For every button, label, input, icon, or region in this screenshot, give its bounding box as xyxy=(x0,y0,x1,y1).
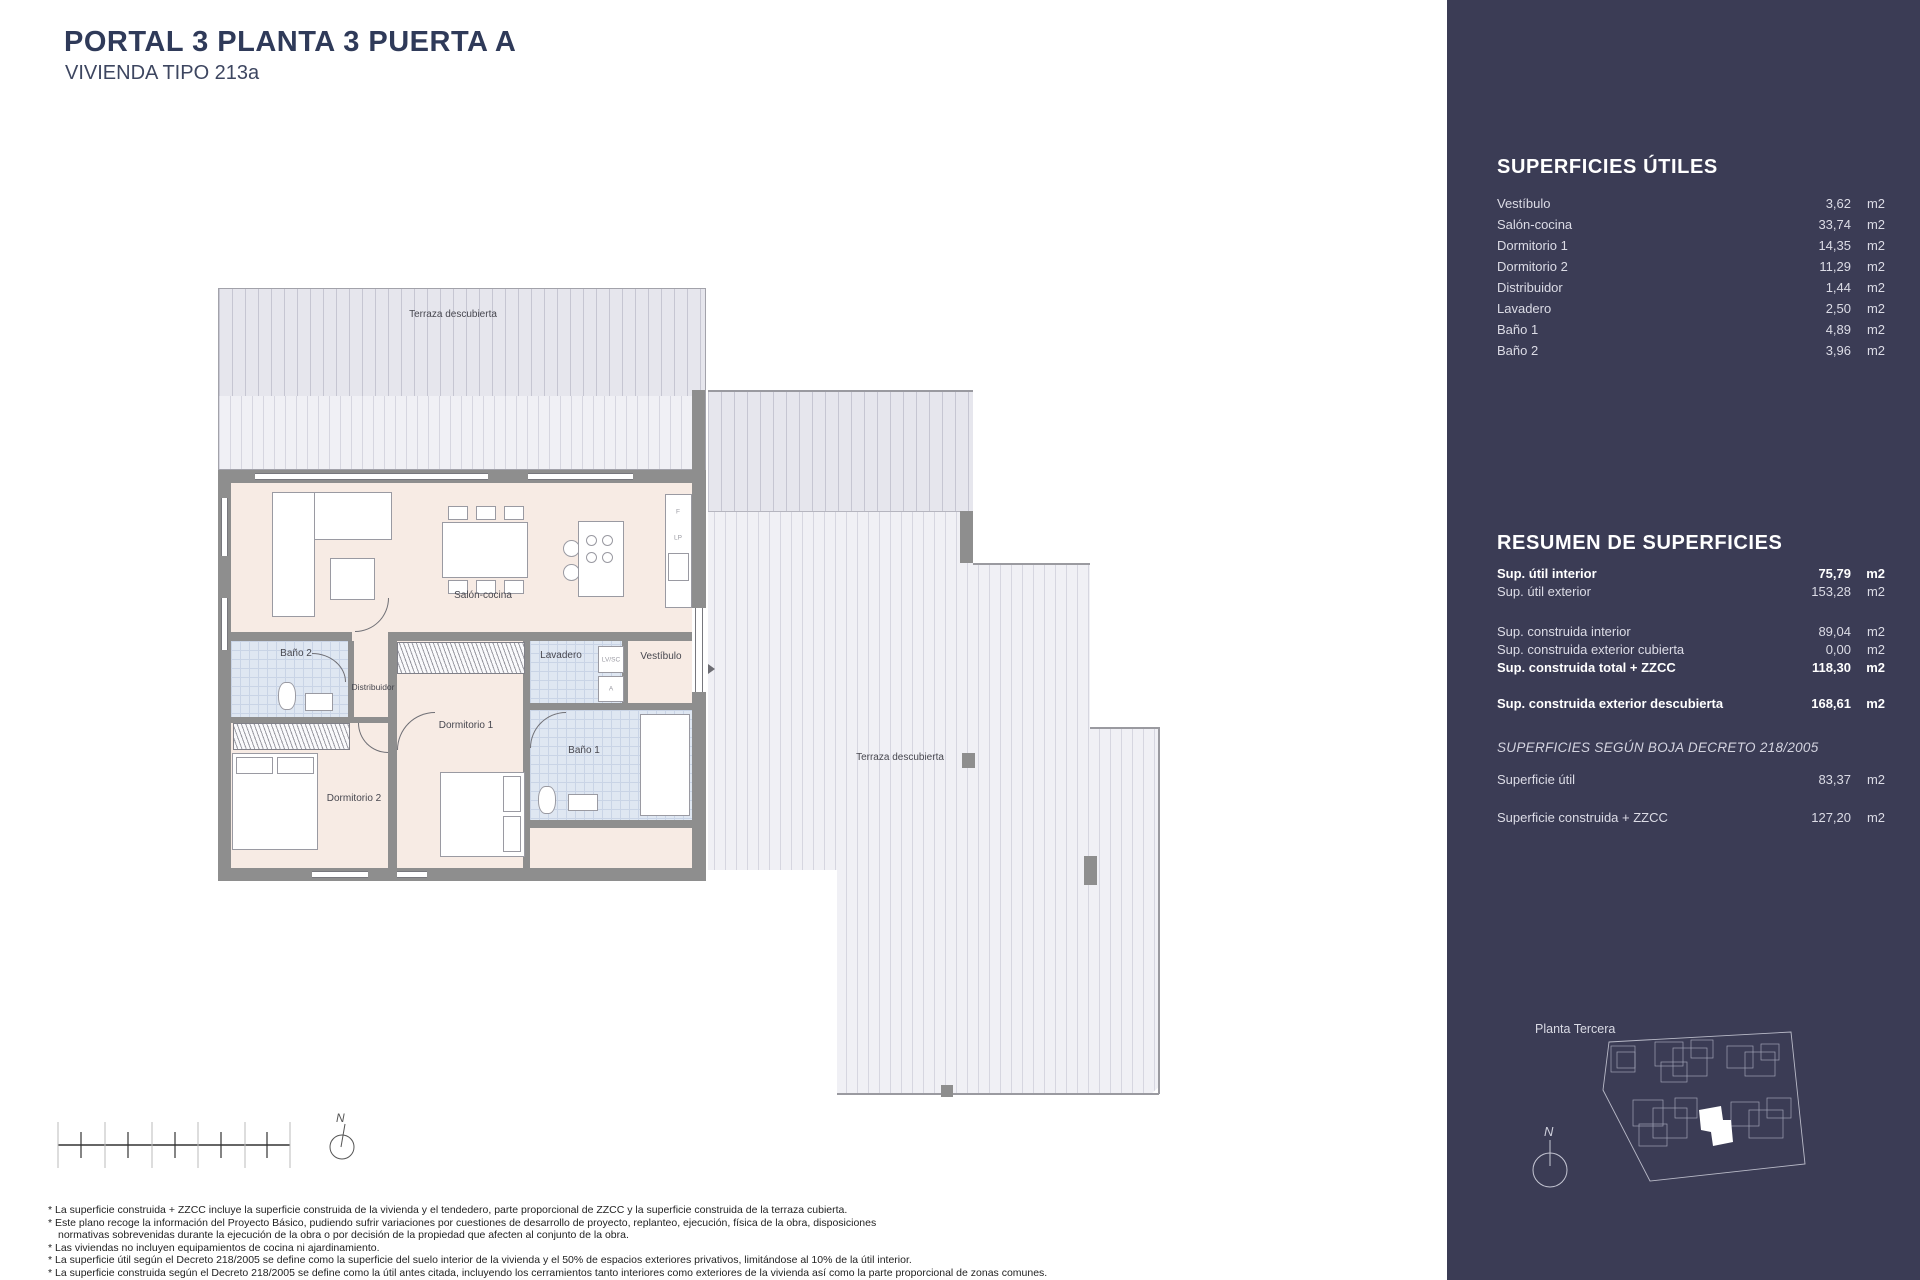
row-value: 11,29 xyxy=(1791,259,1851,277)
sidebar: SUPERFICIES ÚTILES Vestíbulo3,62m2 Salón… xyxy=(1447,0,1920,1280)
chair xyxy=(504,506,524,520)
row-value: 3,96 xyxy=(1791,343,1851,361)
wall-segment xyxy=(692,390,705,470)
kitchen-island xyxy=(578,521,624,597)
wall-segment xyxy=(962,753,975,768)
row-label: Superficie útil xyxy=(1497,772,1791,790)
row-unit: m2 xyxy=(1851,301,1885,319)
row-label: Dormitorio 1 xyxy=(1497,238,1791,256)
terrace-right-label: Terraza descubierta xyxy=(856,752,944,763)
row-value: 118,30 xyxy=(1791,660,1851,678)
row-label: Lavadero xyxy=(1497,301,1791,319)
row-label: Superficie construida + ZZCC xyxy=(1497,810,1791,828)
terrace-right-step-edge xyxy=(1090,727,1160,729)
row-value: 0,00 xyxy=(1791,642,1851,660)
row-unit: m2 xyxy=(1851,343,1885,361)
site-plan xyxy=(1595,1018,1825,1193)
row-label: Distribuidor xyxy=(1497,280,1791,298)
coffee-table xyxy=(330,558,375,600)
room-label-lavadero: Lavadero xyxy=(540,650,582,661)
row-value: 3,62 xyxy=(1791,196,1851,214)
terrace-right-right-edge xyxy=(1158,728,1160,1094)
room-label-bano1: Baño 1 xyxy=(568,745,600,756)
wall-interior xyxy=(388,641,397,868)
row-value: 127,20 xyxy=(1791,810,1851,828)
footnote-line: normativas sobrevenidas durante la ejecu… xyxy=(48,1229,1378,1242)
footnotes: * La superficie construida + ZZCC incluy… xyxy=(48,1204,1378,1279)
row-value: 1,44 xyxy=(1791,280,1851,298)
terrace-top-label: Terraza descubierta xyxy=(409,309,497,320)
row-label: Baño 2 xyxy=(1497,343,1791,361)
sofa xyxy=(272,492,315,617)
terrace-right-top-step-edge xyxy=(973,563,1090,565)
row-value: 89,04 xyxy=(1791,624,1851,642)
floor-plan: Terraza descubierta Terraza descubierta xyxy=(0,0,1447,1280)
superficies-utiles-heading: SUPERFICIES ÚTILES xyxy=(1497,156,1718,179)
kitchen-sink xyxy=(668,553,689,581)
row-unit: m2 xyxy=(1851,696,1885,714)
appliance-label: A xyxy=(609,686,613,693)
cooktop-burner xyxy=(586,552,597,563)
table-row: Superficie útil83,37m2 xyxy=(1497,772,1885,790)
floorplan-sheet: { "colors":{ "sidebar_bg":"#3b3c55", "ti… xyxy=(0,0,1920,1280)
window xyxy=(312,871,368,878)
table-row: Superficie construida + ZZCC127,20m2 xyxy=(1497,810,1885,828)
scale-bar xyxy=(48,1118,300,1170)
wall-interior xyxy=(530,703,692,710)
row-label: Baño 1 xyxy=(1497,322,1791,340)
table-row: Dormitorio 211,29m2 xyxy=(1497,259,1885,277)
chair xyxy=(476,506,496,520)
room-label-vestibulo: Vestíbulo xyxy=(640,651,681,662)
footnote-line: * Este plano recoge la información del P… xyxy=(48,1217,1378,1230)
row-unit: m2 xyxy=(1851,238,1885,256)
boja-heading: SUPERFICIES SEGÚN BOJA DECRETO 218/2005 xyxy=(1497,740,1819,755)
site-plan-highlighted-unit xyxy=(1699,1106,1733,1146)
table-row: Sup. construida total + ZZCC118,30m2 xyxy=(1497,660,1885,678)
terrace-top: Terraza descubierta xyxy=(218,288,706,470)
row-label: Sup. útil exterior xyxy=(1497,584,1791,602)
row-unit: m2 xyxy=(1851,217,1885,235)
wall-segment xyxy=(1084,856,1097,885)
north-label: N xyxy=(336,1111,345,1125)
washer-label: LV/SC xyxy=(602,657,620,664)
cooktop-burner xyxy=(602,535,613,546)
wall-right-upper xyxy=(692,470,706,608)
row-unit: m2 xyxy=(1851,584,1885,602)
footnote-line: * La superficie útil según el Decreto 21… xyxy=(48,1254,1378,1267)
pillow xyxy=(277,757,314,774)
entrance-arrow-icon xyxy=(708,664,715,674)
wall-interior xyxy=(348,641,354,717)
room-label-salon: Salón-cocina xyxy=(454,590,512,601)
wall-interior xyxy=(388,632,692,641)
row-unit: m2 xyxy=(1851,624,1885,642)
row-unit: m2 xyxy=(1851,280,1885,298)
window xyxy=(221,598,228,650)
row-unit: m2 xyxy=(1851,810,1885,828)
wall-right-lower xyxy=(692,692,706,881)
pillow xyxy=(236,757,273,774)
table-row: Baño 23,96m2 xyxy=(1497,343,1885,361)
table-row: Sup. útil interior75,79m2 xyxy=(1497,566,1885,584)
fridge-label: F xyxy=(676,509,680,516)
table-row: Sup. construida exterior descubierta168,… xyxy=(1497,696,1885,714)
row-unit: m2 xyxy=(1851,660,1885,678)
table-row: Dormitorio 114,35m2 xyxy=(1497,238,1885,256)
row-unit: m2 xyxy=(1851,196,1885,214)
room-label-bano2: Baño 2 xyxy=(280,648,312,659)
wardrobe xyxy=(397,642,525,674)
row-unit: m2 xyxy=(1851,566,1885,584)
window xyxy=(528,473,633,480)
pillow xyxy=(503,776,521,812)
row-unit: m2 xyxy=(1851,259,1885,277)
row-value: 83,37 xyxy=(1791,772,1851,790)
wall-segment xyxy=(941,1085,953,1097)
dining-table xyxy=(442,522,528,578)
resumen-heading: RESUMEN DE SUPERFICIES xyxy=(1497,532,1782,555)
terrace-right-bottom-edge xyxy=(837,1093,1159,1095)
row-unit: m2 xyxy=(1851,642,1885,660)
row-value: 2,50 xyxy=(1791,301,1851,319)
north-arrow-icon: N xyxy=(318,1106,370,1168)
table-row: Vestíbulo3,62m2 xyxy=(1497,196,1885,214)
row-label: Sup. construida interior xyxy=(1497,624,1791,642)
row-value: 168,61 xyxy=(1791,696,1851,714)
row-label: Salón-cocina xyxy=(1497,217,1791,235)
cooktop-burner xyxy=(586,535,597,546)
toilet xyxy=(278,682,296,710)
footnote-line: * La superficie construida + ZZCC incluy… xyxy=(48,1204,1378,1217)
row-label: Sup. útil interior xyxy=(1497,566,1791,584)
wall-segment xyxy=(960,511,973,563)
wall-interior xyxy=(231,632,352,641)
row-label: Sup. construida exterior cubierta xyxy=(1497,642,1791,660)
terrace-right-roof-hatch xyxy=(708,390,973,512)
table-row: Salón-cocina33,74m2 xyxy=(1497,217,1885,235)
window xyxy=(221,498,228,556)
terrace-top-roof-hatch xyxy=(219,289,705,397)
row-label: Sup. construida total + ZZCC xyxy=(1497,660,1791,678)
table-row: Sup. útil exterior153,28m2 xyxy=(1497,584,1885,602)
table-row: Sup. construida exterior cubierta0,00m2 xyxy=(1497,642,1885,660)
wall-interior xyxy=(530,820,692,828)
row-label: Vestíbulo xyxy=(1497,196,1791,214)
dishwasher-label: LP xyxy=(674,535,682,542)
footnote-line: * La superficie construida según el Decr… xyxy=(48,1267,1378,1280)
table-row: Distribuidor1,44m2 xyxy=(1497,280,1885,298)
row-value: 14,35 xyxy=(1791,238,1851,256)
footnote-line: * Las viviendas no incluyen equipamiento… xyxy=(48,1242,1378,1255)
room-label-dormitorio1: Dormitorio 1 xyxy=(439,720,493,731)
table-row: Baño 14,89m2 xyxy=(1497,322,1885,340)
row-value: 4,89 xyxy=(1791,322,1851,340)
pillow xyxy=(503,816,521,852)
table-row: Sup. construida interior89,04m2 xyxy=(1497,624,1885,642)
room-label-distribuidor: Distribuidor xyxy=(352,682,395,692)
row-unit: m2 xyxy=(1851,322,1885,340)
window xyxy=(397,871,427,878)
table-row: Lavadero2,50m2 xyxy=(1497,301,1885,319)
sink-vanity xyxy=(305,693,333,711)
cooktop-burner xyxy=(602,552,613,563)
row-unit: m2 xyxy=(1851,772,1885,790)
terrace-top-floor-hatch xyxy=(219,396,705,469)
entrance-door xyxy=(695,608,703,692)
row-value: 33,74 xyxy=(1791,217,1851,235)
row-value: 153,28 xyxy=(1791,584,1851,602)
toilet xyxy=(538,786,556,814)
window xyxy=(255,473,488,480)
row-label: Sup. construida exterior descubierta xyxy=(1497,696,1791,714)
row-label: Dormitorio 2 xyxy=(1497,259,1791,277)
room-label-dormitorio2: Dormitorio 2 xyxy=(327,793,381,804)
wall-bottom xyxy=(218,868,706,881)
sidebar-north-arrow-icon: N xyxy=(1520,1118,1590,1193)
wardrobe xyxy=(233,723,350,750)
shower xyxy=(640,714,690,816)
row-value: 75,79 xyxy=(1791,566,1851,584)
chair xyxy=(448,506,468,520)
terrace-right xyxy=(692,390,1195,1095)
sink-vanity xyxy=(568,794,598,811)
sidebar-north-label: N xyxy=(1544,1124,1554,1139)
